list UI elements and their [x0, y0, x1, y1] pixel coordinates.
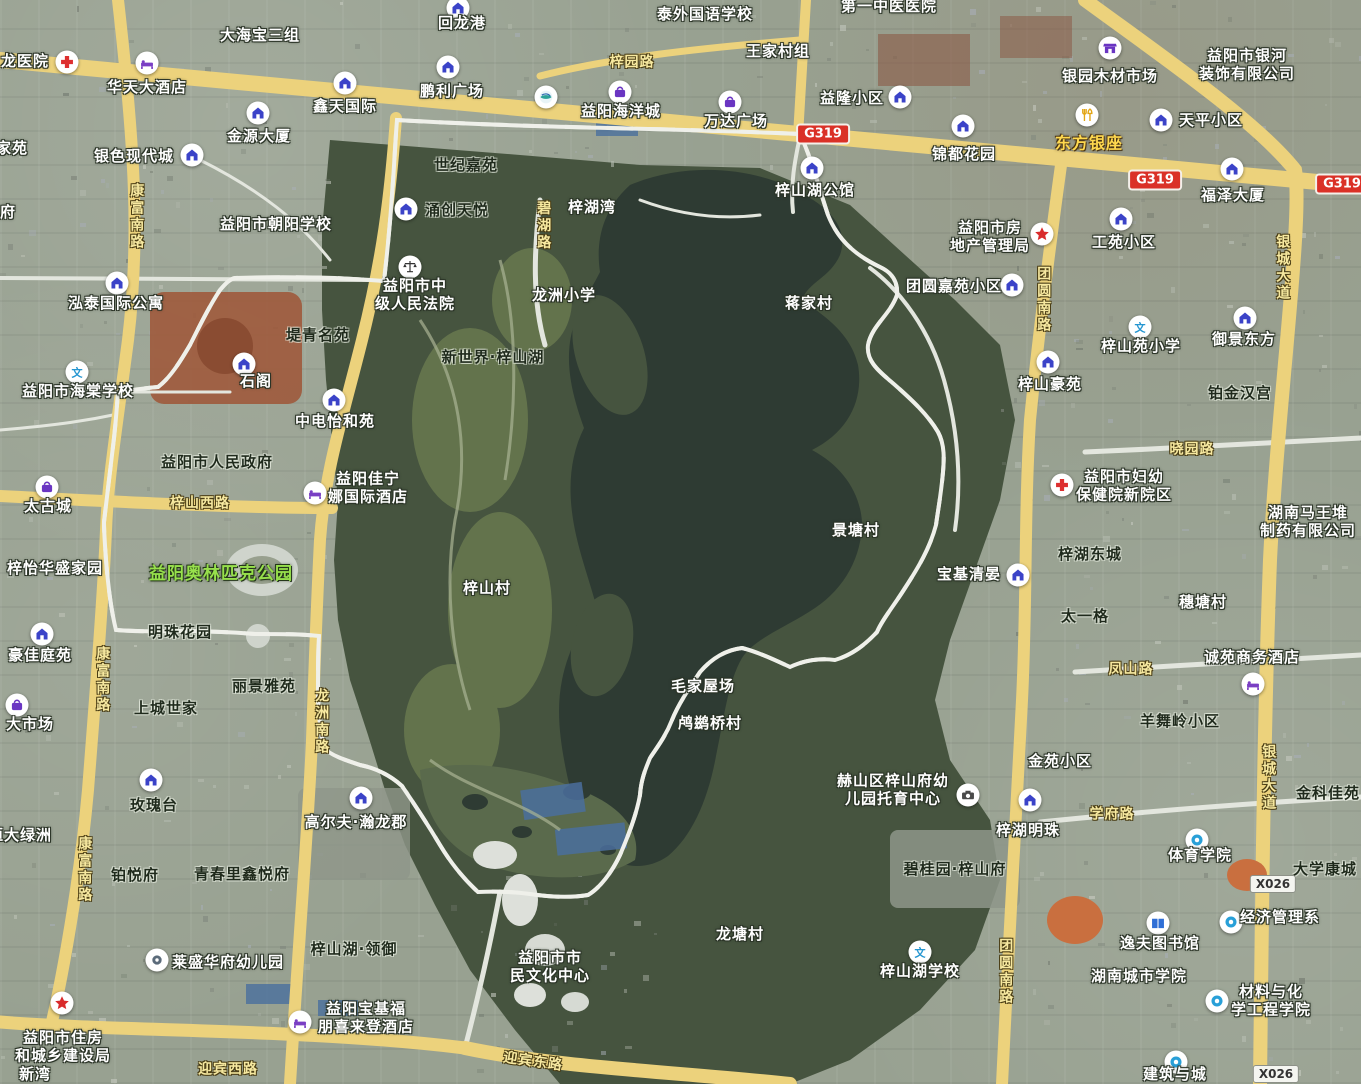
map-label: 益隆小区	[820, 90, 884, 108]
map-label: 玫瑰台	[130, 797, 178, 815]
map-label: 梓湖东城	[1058, 546, 1122, 564]
house-icon[interactable]	[395, 198, 418, 221]
map-label: 鸬鹚桥村	[678, 715, 742, 733]
map-label: 经济管理系	[1240, 909, 1320, 927]
map-label: 福泽大厦	[1201, 187, 1265, 205]
star-icon[interactable]	[51, 992, 74, 1015]
bed-icon[interactable]	[304, 482, 327, 505]
map-label: 大学康城	[1293, 861, 1357, 879]
map-label: 益阳市房 地产管理局	[950, 219, 1030, 254]
bed-icon[interactable]	[289, 1011, 312, 1034]
map-label: 梓山豪苑	[1018, 376, 1082, 394]
map-label: 泰外国语学校	[657, 6, 753, 24]
map-label: 莱盛华府幼儿园	[172, 954, 284, 972]
bed-icon[interactable]	[136, 52, 159, 75]
map-label: 青春里鑫悦府	[194, 866, 290, 884]
map-label: 金苑小区	[1028, 753, 1092, 771]
map-label: 蒋家村	[785, 295, 833, 313]
map-label: 银色现代城	[94, 148, 174, 166]
map-label: 宝基清晏	[937, 566, 1001, 584]
map-label: 益阳市妇幼 保健院新院区	[1076, 468, 1172, 503]
house-icon[interactable]	[1110, 208, 1133, 231]
map-label: 益阳市银河 装饰有限公司	[1199, 47, 1295, 82]
map-label: 益阳市海棠学校	[22, 383, 134, 401]
map-label: 万达广场	[704, 113, 768, 131]
road-badge[interactable]: X026	[1253, 1065, 1299, 1083]
map-label: 工苑小区	[1092, 234, 1156, 252]
map-label: 康富南路	[128, 183, 145, 251]
map-label: 梓山西路	[170, 496, 230, 513]
map-label: 天平小区	[1179, 112, 1243, 130]
map-label: 益阳海洋城	[581, 103, 661, 121]
house-icon[interactable]	[1221, 158, 1244, 181]
bag-icon[interactable]	[6, 694, 29, 717]
map-label: 龙洲南路	[313, 688, 330, 756]
bed-icon[interactable]	[1242, 673, 1265, 696]
map-label: 梓山湖·领御	[311, 941, 398, 959]
fork-icon[interactable]	[1076, 104, 1099, 127]
map-label: 龙医院	[1, 53, 49, 71]
house-icon[interactable]	[437, 56, 460, 79]
road-badge[interactable]: G319	[796, 124, 850, 145]
map-label: 华天大酒店	[107, 79, 187, 97]
map-label: 团圆南路	[997, 938, 1014, 1006]
map-label: 材料与化 学工程学院	[1231, 983, 1311, 1018]
bag-icon[interactable]	[36, 476, 59, 499]
ring-icon[interactable]	[1186, 829, 1209, 852]
ring-icon[interactable]	[1206, 990, 1229, 1013]
map-label: 新世界·梓山湖	[442, 349, 545, 367]
map-label: 太一格	[1061, 608, 1109, 626]
svg-text:文: 文	[1134, 320, 1146, 334]
satellite-map[interactable]: 文文文龙医院华天大酒店大海宝三组回龙港鹏利广场鑫天国际金源大厦银色现代城家苑府泰…	[0, 0, 1361, 1084]
map-label: 梓园路	[610, 55, 655, 72]
house-icon[interactable]	[447, 0, 470, 20]
map-label: 赫山区梓山府幼 儿园托育中心	[837, 772, 949, 807]
map-label: 益阳市住房 和城乡建设局	[15, 1029, 111, 1064]
map-label: 上城世家	[134, 700, 198, 718]
house-icon[interactable]	[31, 623, 54, 646]
brand-icon[interactable]	[535, 86, 558, 109]
wen-icon[interactable]: 文	[909, 941, 932, 964]
map-label: 益阳宝基福 朋喜来登酒店	[318, 1000, 414, 1035]
map-label: 益阳市市 民文化中心	[510, 949, 590, 984]
road-badge[interactable]: X026	[1250, 875, 1296, 893]
camera-icon[interactable]	[957, 784, 980, 807]
road-badge[interactable]: G319	[1128, 170, 1182, 191]
house-icon[interactable]	[1019, 789, 1042, 812]
map-label: 世纪嘉苑	[434, 157, 498, 175]
map-label: 银城大道	[1274, 234, 1291, 302]
map-label: 景塘村	[832, 522, 880, 540]
house-icon[interactable]	[1001, 274, 1024, 297]
ring-icon[interactable]	[1165, 1051, 1188, 1074]
map-label: 第一中医医院	[841, 0, 937, 16]
house-icon[interactable]	[323, 389, 346, 412]
store-icon[interactable]	[1099, 37, 1122, 60]
house-icon[interactable]	[1150, 109, 1173, 132]
cross-icon[interactable]	[56, 51, 79, 74]
map-label: 穗塘村	[1179, 594, 1227, 612]
map-label: 石阁	[240, 373, 272, 391]
house-icon[interactable]	[350, 787, 373, 810]
map-label: 鑫天国际	[313, 98, 377, 116]
map-label: 湖南马王堆 制药有限公司	[1260, 504, 1356, 539]
map-label: 龙塘村	[716, 926, 764, 944]
map-label: 益阳市中 级人民法院	[375, 277, 455, 312]
house-icon[interactable]	[889, 86, 912, 109]
map-label: 诚苑商务酒店	[1204, 649, 1300, 667]
map-label: 龙洲小学	[532, 287, 596, 305]
map-label: 银城大道	[1260, 744, 1277, 812]
map-label: 湖南城市学院	[1091, 968, 1187, 986]
map-label: 益阳奥林匹克公园	[149, 564, 293, 584]
map-label: 凤山路	[1109, 662, 1154, 679]
map-label: 益阳佳宁 娜国际酒店	[328, 470, 408, 505]
house-icon[interactable]	[1007, 564, 1030, 587]
map-label: 学府路	[1090, 807, 1135, 824]
map-label: 梓山湖学校	[880, 963, 960, 981]
house-icon[interactable]	[1037, 351, 1060, 374]
map-label: 明珠花园	[148, 624, 212, 642]
map-label: 金科佳苑	[1296, 785, 1360, 803]
map-label: 家苑	[0, 140, 28, 158]
map-label: 银园木材市场	[1062, 68, 1158, 86]
house-icon[interactable]	[140, 769, 163, 792]
map-label: 铂悦府	[111, 867, 159, 885]
map-label: 豪佳庭苑	[8, 647, 72, 665]
map-label: 东方银座	[1055, 135, 1123, 154]
map-label: 团圆嘉苑小区	[906, 278, 1002, 296]
map-label: 丽景雅苑	[232, 678, 296, 696]
map-label: 梓湖明珠	[996, 822, 1060, 840]
house-icon[interactable]	[233, 353, 256, 376]
map-label: 梓湖湾	[568, 199, 616, 217]
map-label: 碧湖路	[535, 201, 552, 252]
svg-text:文: 文	[914, 945, 926, 959]
map-label: 康富南路	[94, 646, 111, 714]
svg-text:文: 文	[71, 365, 83, 379]
map-label: 迎宾西路	[198, 1062, 258, 1079]
map-label: 太古城	[24, 498, 72, 516]
map-label: 大海宝三组	[220, 27, 300, 45]
book-icon[interactable]	[1147, 912, 1170, 935]
map-label: 涌创天悦	[425, 202, 489, 220]
house-icon[interactable]	[106, 272, 129, 295]
map-overlay: 文文文龙医院华天大酒店大海宝三组回龙港鹏利广场鑫天国际金源大厦银色现代城家苑府泰…	[0, 0, 1361, 1084]
house-icon[interactable]	[952, 115, 975, 138]
map-label: 碧桂园·梓山府	[904, 861, 1007, 879]
map-label: 益阳市人民政府	[161, 454, 273, 472]
map-label: 金源大厦	[227, 128, 291, 146]
map-label: 鹏利广场	[420, 83, 484, 101]
map-label: 锦都花园	[932, 146, 996, 164]
map-label: 逸夫图书馆	[1120, 935, 1200, 953]
map-label: 府	[0, 204, 16, 222]
map-label: 晓园路	[1170, 442, 1215, 459]
map-label: 王家村组	[746, 43, 810, 61]
bag-icon[interactable]	[719, 91, 742, 114]
map-label: 恒大绿洲	[0, 827, 52, 845]
map-label: 新湾	[19, 1066, 51, 1084]
house-icon[interactable]	[1234, 307, 1257, 330]
map-label: 御景东方	[1212, 331, 1276, 349]
star-icon[interactable]	[1031, 223, 1054, 246]
house-icon[interactable]	[801, 157, 824, 180]
map-label: 高尔夫·瀚龙郡	[305, 814, 408, 832]
map-label: 大市场	[6, 716, 54, 734]
poi-icon[interactable]	[146, 949, 169, 972]
map-label: 康富南路	[76, 836, 93, 904]
map-label: 梓山苑小学	[1101, 338, 1181, 356]
road-badge[interactable]: G319	[1315, 174, 1361, 195]
ring-icon[interactable]	[1220, 911, 1243, 934]
wen-icon[interactable]: 文	[1129, 316, 1152, 339]
map-label: 羊舞岭小区	[1140, 713, 1220, 731]
map-label: 中电怡和苑	[295, 413, 375, 431]
bag-icon[interactable]	[609, 81, 632, 104]
scales-icon[interactable]	[399, 256, 422, 279]
house-icon[interactable]	[334, 72, 357, 95]
map-label: 梓山村	[463, 580, 511, 598]
map-label: 团圆南路	[1035, 266, 1052, 334]
map-label: 梓山湖公馆	[775, 182, 855, 200]
wen-icon[interactable]: 文	[66, 361, 89, 384]
map-label: 迎宾东路	[502, 1050, 564, 1075]
cross-icon[interactable]	[1051, 474, 1074, 497]
house-icon[interactable]	[181, 144, 204, 167]
map-label: 泓泰国际公寓	[68, 295, 164, 313]
map-label: 益阳市朝阳学校	[220, 216, 332, 234]
map-label: 梓怡华盛家园	[7, 560, 103, 578]
map-label: 堤青名苑	[286, 327, 350, 345]
map-label: 毛家屋场	[671, 678, 735, 696]
map-label: 铂金汉宫	[1208, 385, 1272, 403]
house-icon[interactable]	[247, 102, 270, 125]
